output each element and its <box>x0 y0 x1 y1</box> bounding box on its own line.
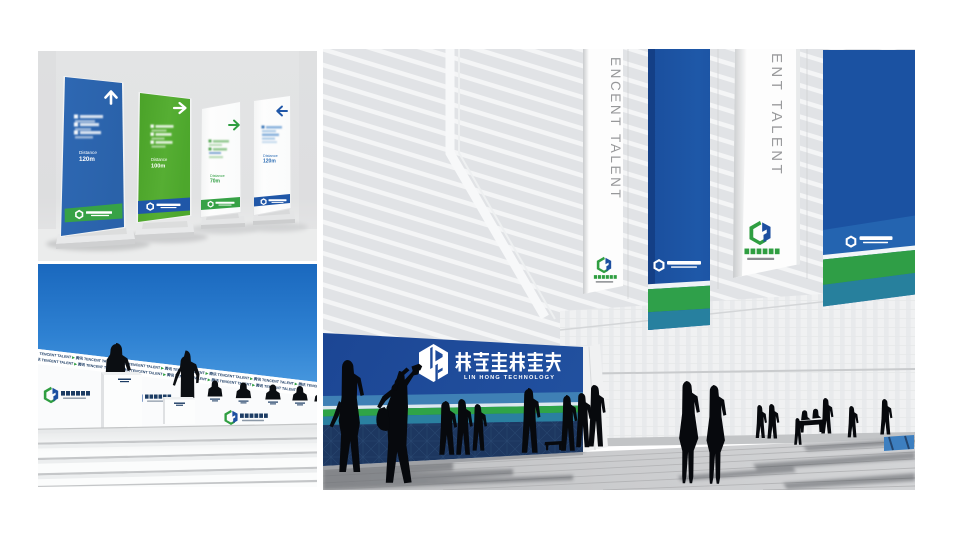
svg-text:120m: 120m <box>79 156 95 163</box>
svg-text:ENT TALENT: ENT TALENT <box>768 53 785 177</box>
svg-text:Distance: Distance <box>151 157 168 162</box>
svg-text:Distance: Distance <box>263 154 278 158</box>
svg-text:120m: 120m <box>263 159 276 165</box>
svg-text:ENCENT TALENT: ENCENT TALENT <box>608 57 623 200</box>
svg-text:Distance: Distance <box>79 150 97 155</box>
svg-text:Distance: Distance <box>210 174 225 178</box>
svg-text:LIN HONG TECHNOLOGY: LIN HONG TECHNOLOGY <box>464 375 555 381</box>
svg-text:70m: 70m <box>210 179 221 185</box>
svg-text:100m: 100m <box>151 164 165 170</box>
